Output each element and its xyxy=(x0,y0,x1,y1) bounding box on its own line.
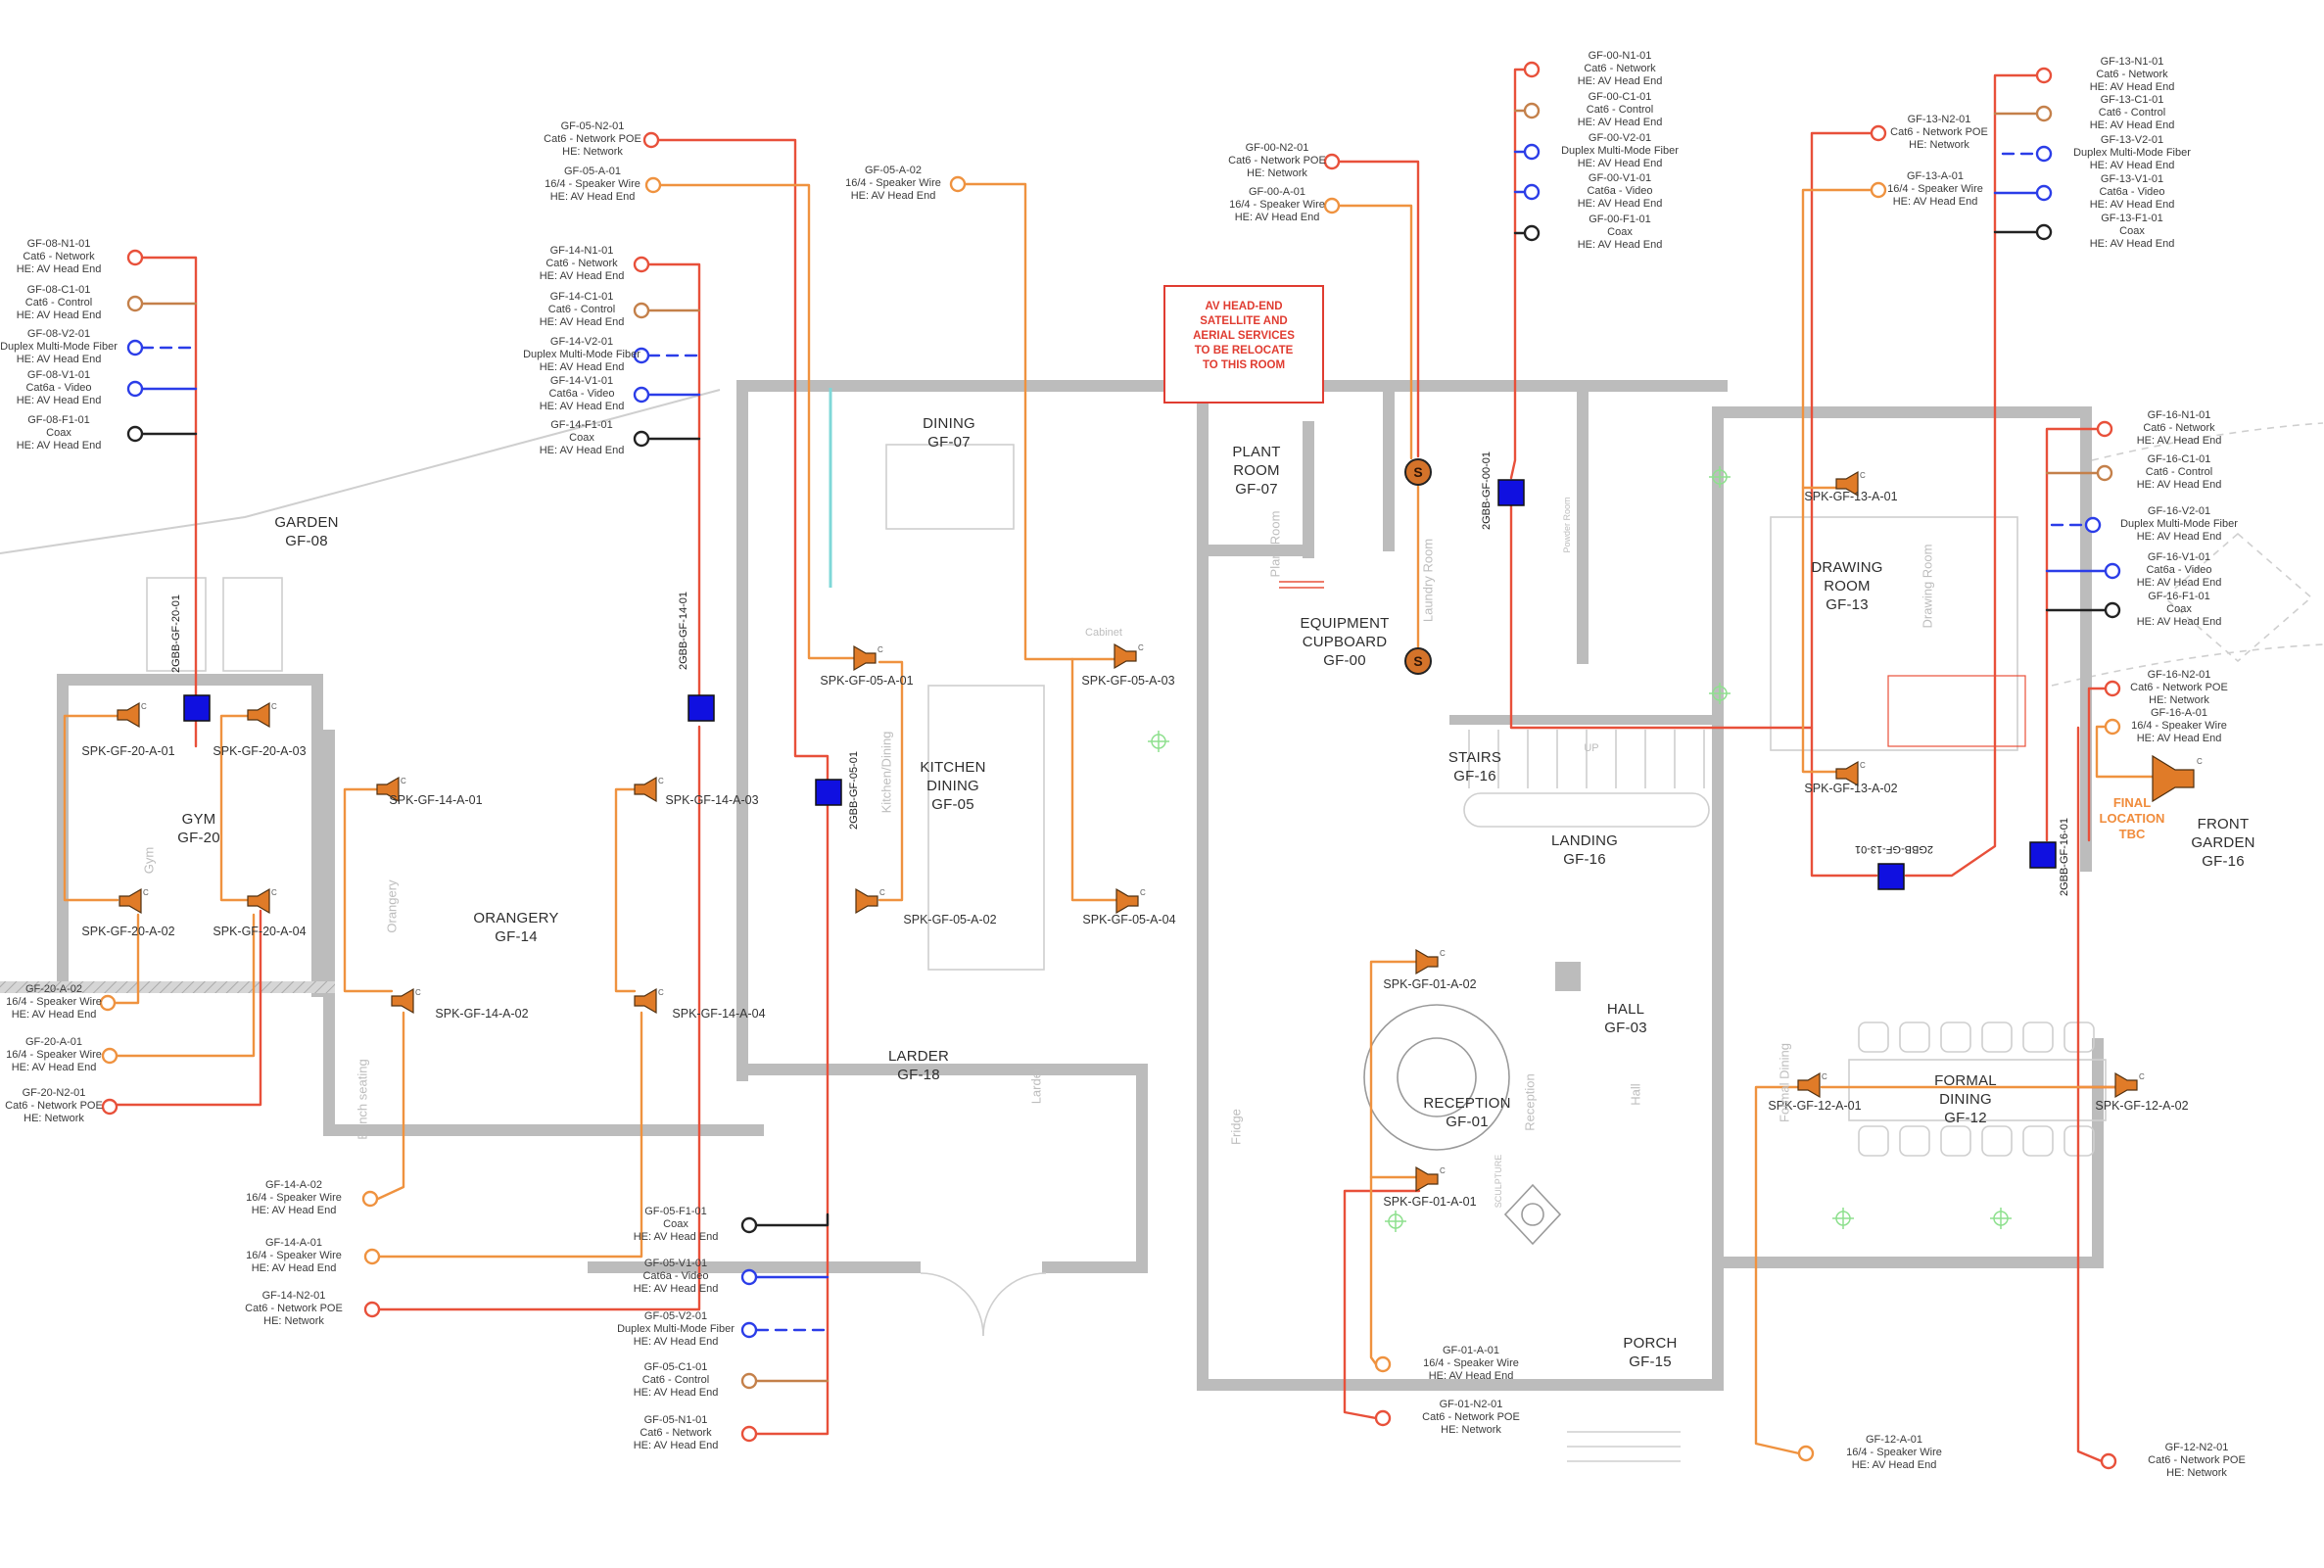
junction-box-2gbb-gf-13-01 xyxy=(1878,864,1904,889)
speaker-icon: C xyxy=(1116,888,1146,913)
junction-box-2gbb-gf-05-01 xyxy=(816,780,841,805)
callout-gf-00-v1-01: GF-00-V1-01Cat6a - VideoHE: AV Head End xyxy=(1541,172,1698,211)
callout-gf-20-a-01: GF-20-A-0116/4 - Speaker WireHE: AV Head… xyxy=(0,1036,132,1074)
network-wires xyxy=(117,70,2117,1461)
callout-gf-13-f1-01: GF-13-F1-01CoaxHE: AV Head End xyxy=(2054,213,2210,251)
speaker-label: SPK-GF-01-A-02 xyxy=(1352,977,1508,991)
plan-text: Gym xyxy=(142,792,157,929)
svg-text:C: C xyxy=(271,702,277,711)
junction-box-2gbb-gf-20-01 xyxy=(184,695,210,721)
speaker-icon: C xyxy=(248,702,277,727)
callout-gf-08-c1-01: GF-08-C1-01Cat6 - ControlHE: AV Head End xyxy=(0,284,137,322)
speaker-label: SPK-GF-01-A-01 xyxy=(1352,1195,1508,1209)
callout-gf-00-a-01: GF-00-A-0116/4 - Speaker WireHE: AV Head… xyxy=(1199,186,1355,224)
plan-text: Reception xyxy=(1523,1034,1538,1171)
relocate-note: AV HEAD-ENDSATELLITE AND AERIAL SERVICES… xyxy=(1163,285,1324,404)
callout-gf-16-v2-01: GF-16-V2-01Duplex Multi-Mode FiberHE: AV… xyxy=(2101,505,2257,544)
callout-gf-13-v1-01: GF-13-V1-01Cat6a - VideoHE: AV Head End xyxy=(2054,173,2210,212)
callout-gf-12-n2-01: GF-12-N2-01Cat6 - Network POEHE: Network xyxy=(2118,1442,2275,1480)
speaker-icon: C xyxy=(854,645,883,670)
plan-text: Laundry Room xyxy=(1421,512,1436,649)
svg-text:C: C xyxy=(1440,1166,1446,1175)
callout-gf-05-a-02: GF-05-A-0216/4 - Speaker WireHE: AV Head… xyxy=(815,165,972,203)
speaker-label: SPK-GF-13-A-02 xyxy=(1773,782,1929,795)
speaker-icon: C xyxy=(1798,1072,1827,1097)
speaker-label: SPK-GF-20-A-04 xyxy=(181,925,338,938)
callout-gf-08-v2-01: GF-08-V2-01Duplex Multi-Mode FiberHE: AV… xyxy=(0,328,137,366)
callout-gf-08-n1-01: GF-08-N1-01Cat6 - NetworkHE: AV Head End xyxy=(0,238,137,276)
junction-box-label: 2GBB-GF-16-01 xyxy=(2059,798,2070,916)
callout-gf-01-n2-01: GF-01-N2-01Cat6 - Network POEHE: Network xyxy=(1393,1399,1549,1437)
speaker-label: SPK-GF-14-A-01 xyxy=(357,793,514,807)
speaker-label: SPK-GF-05-A-02 xyxy=(872,913,1028,927)
speaker-icon: C xyxy=(1416,949,1446,974)
room-label-plant: PLANTROOMGF-07 xyxy=(1173,443,1340,499)
svg-text:S: S xyxy=(1413,464,1422,480)
callout-gf-08-v1-01: GF-08-V1-01Cat6a - VideoHE: AV Head End xyxy=(0,369,137,407)
callout-gf-16-v1-01: GF-16-V1-01Cat6a - VideoHE: AV Head End xyxy=(2101,551,2257,590)
callout-gf-20-a-02: GF-20-A-0216/4 - Speaker WireHE: AV Head… xyxy=(0,983,132,1022)
plan-text: Hall xyxy=(1629,1026,1643,1164)
junction-box-label: 2GBB-GF-00-01 xyxy=(1481,432,1493,549)
speaker-label: SPK-GF-12-A-01 xyxy=(1736,1099,1893,1113)
callout-gf-05-c1-01: GF-05-C1-01Cat6 - ControlHE: AV Head End xyxy=(597,1361,754,1400)
speaker-label: SPK-GF-13-A-01 xyxy=(1773,490,1929,503)
speaker-label: SPK-GF-05-A-01 xyxy=(788,674,945,688)
svg-text:C: C xyxy=(415,988,421,997)
callout-gf-13-n1-01: GF-13-N1-01Cat6 - NetworkHE: AV Head End xyxy=(2054,56,2210,94)
callout-gf-14-n2-01: GF-14-N2-01Cat6 - Network POEHE: Network xyxy=(215,1290,372,1328)
callout-gf-05-n1-01: GF-05-N1-01Cat6 - NetworkHE: AV Head End xyxy=(597,1414,754,1452)
speaker-label: SPK-GF-05-A-03 xyxy=(1050,674,1207,688)
speaker-label: SPK-GF-05-A-04 xyxy=(1051,913,1208,927)
callout-gf-05-n2-01: GF-05-N2-01Cat6 - Network POEHE: Network xyxy=(514,120,671,159)
callout-gf-08-f1-01: GF-08-F1-01CoaxHE: AV Head End xyxy=(0,414,137,452)
speaker-label: SPK-GF-14-A-03 xyxy=(634,793,790,807)
junction-box-2gbb-gf-14-01 xyxy=(688,695,714,721)
callout-gf-00-v2-01: GF-00-V2-01Duplex Multi-Mode FiberHE: AV… xyxy=(1541,132,1698,170)
junction-box-2gbb-gf-00-01 xyxy=(1498,480,1524,505)
room-label-drawing: DRAWINGROOMGF-13 xyxy=(1764,558,1930,614)
junction-box-label: 2GBB-GF-05-01 xyxy=(848,732,860,849)
speaker-wires xyxy=(65,184,2153,1453)
callout-gf-16-n1-01: GF-16-N1-01Cat6 - NetworkHE: AV Head End xyxy=(2101,409,2257,448)
speaker-label: SPK-GF-14-A-04 xyxy=(640,1007,797,1021)
room-label-kitchen: KITCHENDININGGF-05 xyxy=(870,758,1036,814)
svg-text:C: C xyxy=(401,777,406,785)
speaker-icon: C xyxy=(118,702,147,727)
speaker-icon: C xyxy=(1115,643,1144,668)
room-label-larder: LARDERGF-18 xyxy=(835,1047,1002,1084)
callout-gf-14-v1-01: GF-14-V1-01Cat6a - VideoHE: AV Head End xyxy=(503,375,660,413)
room-label-front-garden: FRONTGARDENGF-16 xyxy=(2140,815,2306,871)
callout-gf-00-c1-01: GF-00-C1-01Cat6 - ControlHE: AV Head End xyxy=(1541,91,1698,129)
junction-box-label: 2GBB-GF-14-01 xyxy=(678,572,689,689)
plan-text: Cabinet xyxy=(1055,627,1153,639)
speaker-label: SPK-GF-20-A-03 xyxy=(181,744,338,758)
plan-text: Formal Dining xyxy=(1778,1015,1792,1152)
room-label-stairs: STAIRSGF-16 xyxy=(1392,748,1558,785)
satellite-node-icon: S xyxy=(1405,459,1431,485)
room-label-hall: HALLGF-03 xyxy=(1542,1000,1709,1037)
callout-gf-12-a-01: GF-12-A-0116/4 - Speaker WireHE: AV Head… xyxy=(1816,1434,1972,1472)
plan-text: Powder Room xyxy=(1562,456,1572,594)
plan-text: Fridge xyxy=(1229,1059,1244,1196)
room-label-landing: LANDINGGF-16 xyxy=(1501,832,1668,869)
callout-gf-13-n2-01: GF-13-N2-01Cat6 - Network POEHE: Network xyxy=(1861,114,2017,152)
callout-gf-05-a-01: GF-05-A-0116/4 - Speaker WireHE: AV Head… xyxy=(514,166,671,204)
callout-gf-13-c1-01: GF-13-C1-01Cat6 - ControlHE: AV Head End xyxy=(2054,94,2210,132)
callout-gf-13-a-01: GF-13-A-0116/4 - Speaker WireHE: AV Head… xyxy=(1857,170,2014,209)
callout-gf-16-c1-01: GF-16-C1-01Cat6 - ControlHE: AV Head End xyxy=(2101,453,2257,492)
callout-gf-14-a-01: GF-14-A-0116/4 - Speaker WireHE: AV Head… xyxy=(215,1237,372,1275)
svg-text:C: C xyxy=(1140,888,1146,897)
callout-gf-05-v2-01: GF-05-V2-01Duplex Multi-Mode FiberHE: AV… xyxy=(597,1310,754,1349)
svg-text:C: C xyxy=(2139,1072,2145,1081)
room-label-garden: GARDENGF-08 xyxy=(223,513,390,550)
svg-text:C: C xyxy=(1440,949,1446,958)
plan-text: Bench seating xyxy=(356,1031,370,1168)
speaker-label: SPK-GF-12-A-02 xyxy=(2063,1099,2220,1113)
callout-gf-05-v1-01: GF-05-V1-01Cat6a - VideoHE: AV Head End xyxy=(597,1258,754,1296)
callout-gf-14-a-02: GF-14-A-0216/4 - Speaker WireHE: AV Head… xyxy=(215,1179,372,1217)
svg-text:C: C xyxy=(141,702,147,711)
callout-gf-01-a-01: GF-01-A-0116/4 - Speaker WireHE: AV Head… xyxy=(1393,1345,1549,1383)
plan-text: Drawing Room xyxy=(1921,518,1935,655)
room-label-orangery: ORANGERYGF-14 xyxy=(433,909,599,946)
plan-text: Plant Room xyxy=(1268,476,1283,613)
plan-text: SCULPTURE xyxy=(1494,1113,1503,1250)
callout-gf-00-f1-01: GF-00-F1-01CoaxHE: AV Head End xyxy=(1541,214,1698,252)
room-label-gym: GYMGF-20 xyxy=(116,810,282,847)
callout-gf-05-f1-01: GF-05-F1-01CoaxHE: AV Head End xyxy=(597,1206,754,1244)
speaker-icon: C xyxy=(1416,1166,1446,1191)
speaker-label: SPK-GF-14-A-02 xyxy=(403,1007,560,1021)
control-wires xyxy=(142,111,2098,1381)
room-label-dining: DININGGF-07 xyxy=(866,414,1032,451)
junction-box-label: 2GBB-GF-13-01 xyxy=(1835,843,1953,855)
svg-text:C: C xyxy=(879,888,885,897)
junction-box-2gbb-gf-16-01 xyxy=(2030,842,2056,868)
callout-gf-00-n1-01: GF-00-N1-01Cat6 - NetworkHE: AV Head End xyxy=(1541,50,1698,88)
room-label-equipment: EQUIPMENTCUPBOARDGF-00 xyxy=(1261,614,1428,670)
room-label-porch: PORCHGF-15 xyxy=(1567,1334,1733,1371)
junction-box-label: 2GBB-GF-20-01 xyxy=(170,575,182,692)
callout-gf-14-v2-01: GF-14-V2-01Duplex Multi-Mode FiberHE: AV… xyxy=(503,336,660,374)
callout-gf-14-c1-01: GF-14-C1-01Cat6 - ControlHE: AV Head End xyxy=(503,291,660,329)
callout-gf-16-f1-01: GF-16-F1-01CoaxHE: AV Head End xyxy=(2101,591,2257,629)
callout-gf-20-n2-01: GF-20-N2-01Cat6 - Network POEHE: Network xyxy=(0,1087,132,1125)
callout-gf-00-n2-01: GF-00-N2-01Cat6 - Network POEHE: Network xyxy=(1199,142,1355,180)
floorplan-canvas: S S C C C C C C C C C C C xyxy=(0,0,2324,1568)
speaker-icon: C xyxy=(2115,1072,2145,1097)
svg-text:C: C xyxy=(2197,757,2203,766)
av-wiring-overlay: S S C C C C C C C C C C C xyxy=(0,0,2324,1568)
callout-gf-14-f1-01: GF-14-F1-01CoaxHE: AV Head End xyxy=(503,419,660,457)
svg-text:C: C xyxy=(1822,1072,1827,1081)
plan-text: Kitchen/Dining xyxy=(879,704,894,841)
svg-text:C: C xyxy=(658,777,664,785)
callout-gf-16-n2-01: GF-16-N2-01Cat6 - Network POEHE: Network xyxy=(2101,669,2257,707)
svg-text:C: C xyxy=(877,645,883,654)
callout-gf-16-a-01: GF-16-A-0116/4 - Speaker WireHE: AV Head… xyxy=(2101,707,2257,745)
fiber-wires xyxy=(142,152,2100,1330)
callout-gf-14-n1-01: GF-14-N1-01Cat6 - NetworkHE: AV Head End xyxy=(503,245,660,283)
callout-gf-13-v2-01: GF-13-V2-01Duplex Multi-Mode FiberHE: AV… xyxy=(2054,134,2210,172)
plan-text: Larder xyxy=(1029,1018,1044,1155)
svg-text:C: C xyxy=(1860,471,1866,480)
speaker-icon: C xyxy=(248,888,277,913)
svg-text:C: C xyxy=(1860,761,1866,770)
svg-text:C: C xyxy=(271,888,277,897)
svg-text:C: C xyxy=(1138,643,1144,652)
svg-text:C: C xyxy=(658,988,664,997)
room-label-formal: FORMALDININGGF-12 xyxy=(1882,1071,2049,1127)
plan-text: UP xyxy=(1542,742,1640,754)
plan-text: Orangery xyxy=(385,838,400,975)
